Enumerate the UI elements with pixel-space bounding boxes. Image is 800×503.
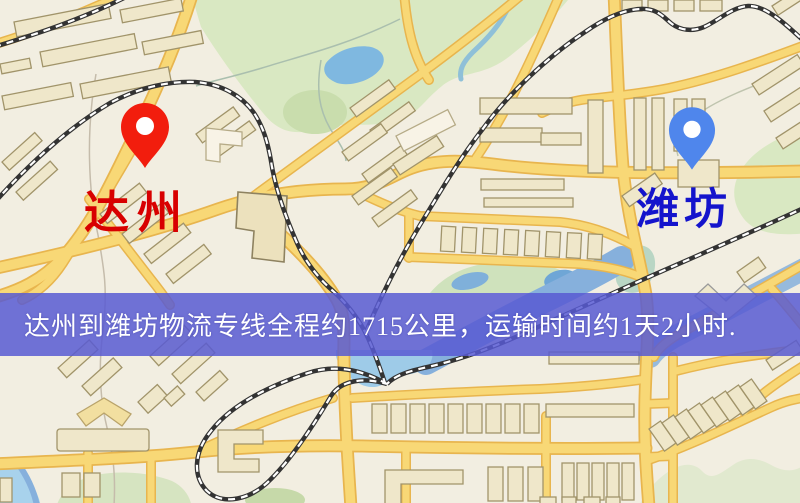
- route-info-banner: 达州到潍坊物流专线全程约1715公里，运输时间约1天2小时.: [0, 293, 800, 356]
- map-canvas: 达州到潍坊物流专线全程约1715公里，运输时间约1天2小时. 达州 潍坊: [0, 0, 800, 503]
- origin-city-label: 达州: [84, 176, 190, 241]
- destination-pin-icon: [668, 106, 716, 170]
- basemap-image: [0, 0, 800, 503]
- origin-pin-icon: [119, 102, 171, 168]
- route-info-text: 达州到潍坊物流专线全程约1715公里，运输时间约1天2小时.: [0, 306, 737, 343]
- destination-city-label: 潍坊: [636, 175, 732, 237]
